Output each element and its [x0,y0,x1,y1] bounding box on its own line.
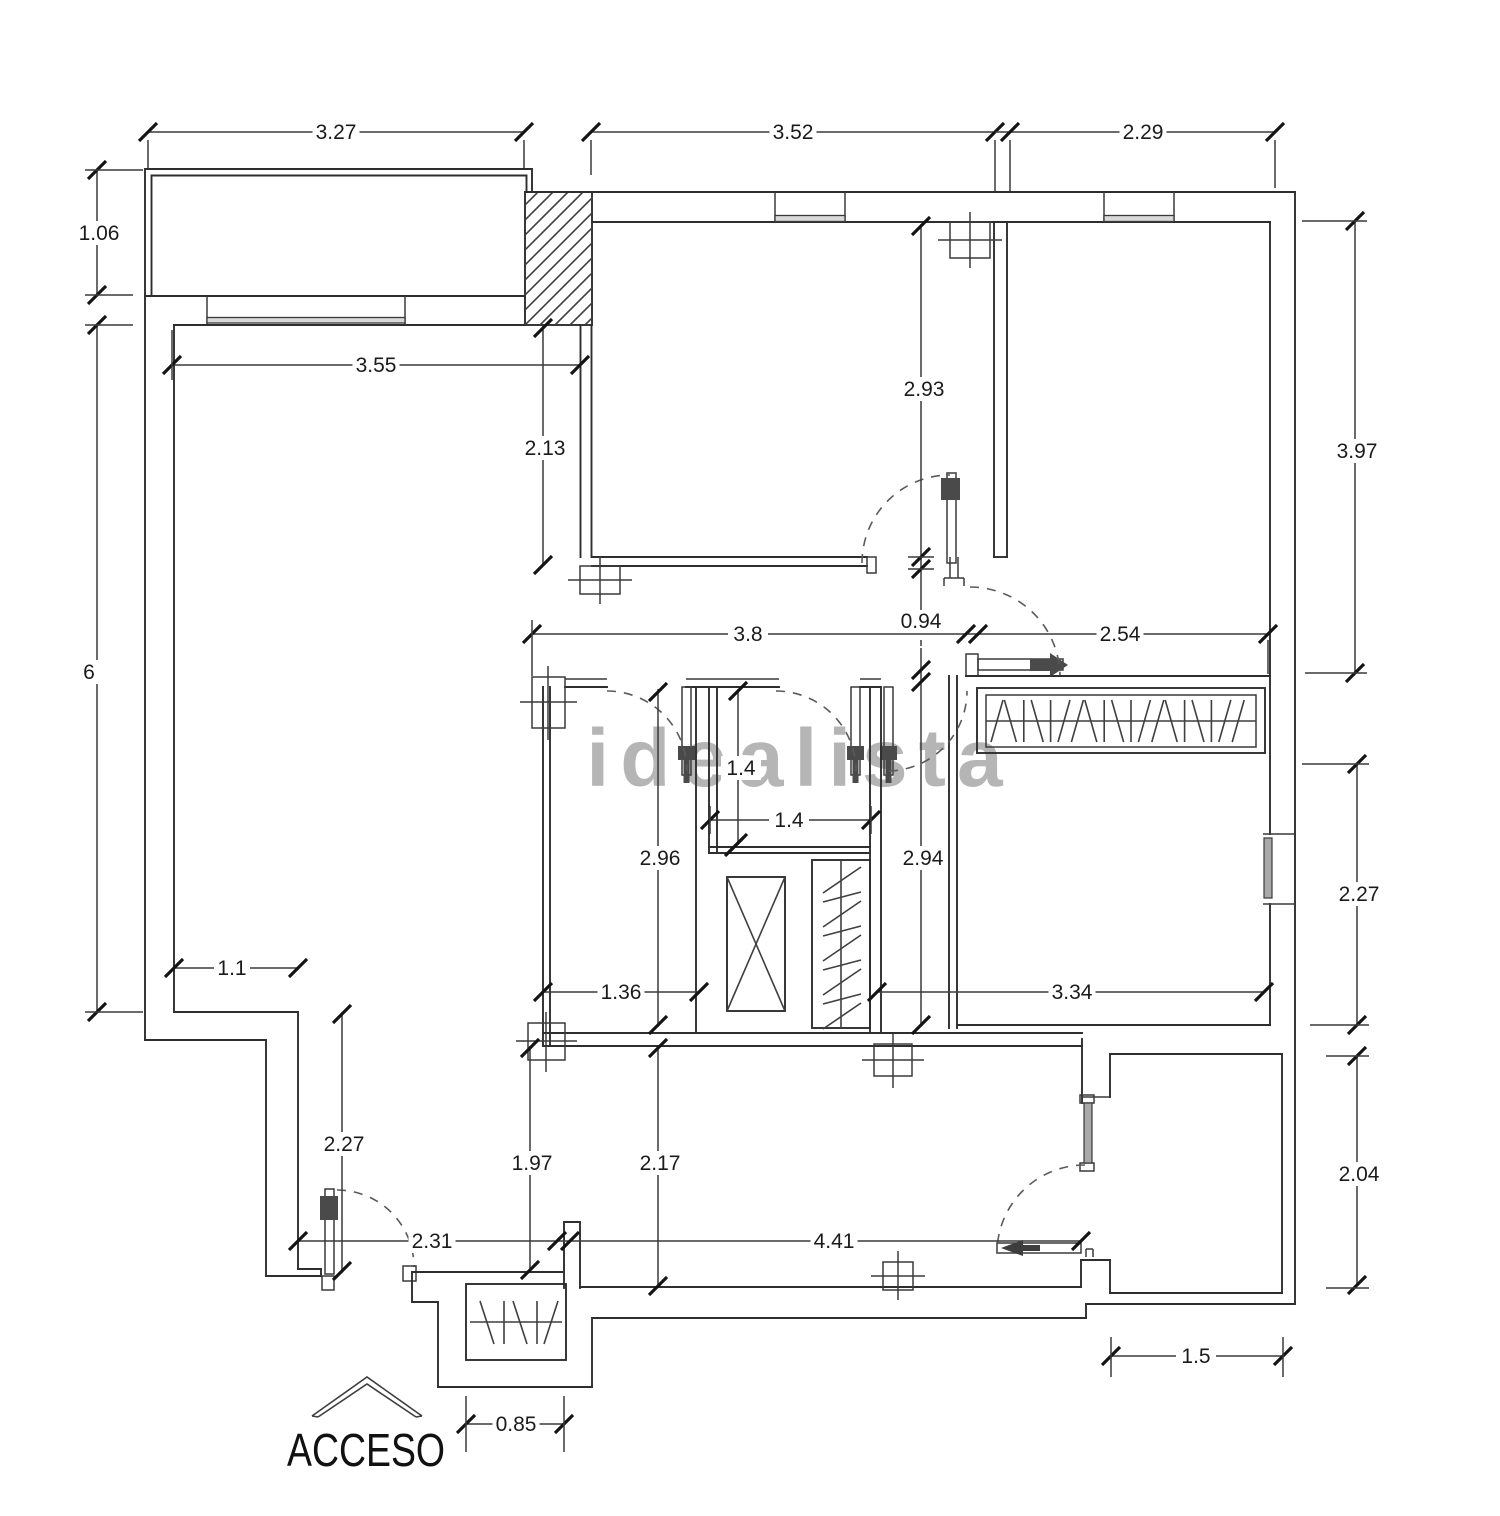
svg-text:2.96: 2.96 [640,847,681,870]
svg-text:4.41: 4.41 [814,1230,855,1253]
svg-text:1.1: 1.1 [217,957,246,980]
svg-text:2.94: 2.94 [903,847,944,870]
svg-text:2.04: 2.04 [1339,1163,1380,1186]
svg-text:0.94: 0.94 [901,610,942,633]
svg-text:1.4: 1.4 [726,757,756,780]
svg-text:2.31: 2.31 [412,1230,453,1253]
svg-text:1.06: 1.06 [79,222,120,245]
svg-text:3.97: 3.97 [1337,440,1378,463]
svg-text:1.36: 1.36 [601,981,642,1004]
svg-text:1.4: 1.4 [774,809,804,832]
svg-text:2.29: 2.29 [1123,121,1164,144]
svg-text:2.17: 2.17 [640,1152,681,1175]
svg-text:0.85: 0.85 [496,1413,537,1436]
svg-text:1.97: 1.97 [512,1152,553,1175]
svg-text:3.8: 3.8 [733,623,762,646]
svg-text:2.27: 2.27 [1339,883,1380,906]
svg-text:3.52: 3.52 [773,121,814,144]
svg-text:ACCESO: ACCESO [287,1424,445,1476]
svg-text:1.5: 1.5 [1181,1345,1210,1368]
svg-text:6: 6 [83,661,95,684]
svg-text:2.13: 2.13 [525,437,566,460]
svg-text:3.55: 3.55 [356,354,397,377]
svg-text:3.27: 3.27 [316,121,357,144]
svg-text:2.93: 2.93 [904,378,945,401]
svg-text:2.27: 2.27 [324,1133,365,1156]
svg-text:3.34: 3.34 [1052,981,1093,1004]
svg-text:2.54: 2.54 [1100,623,1141,646]
